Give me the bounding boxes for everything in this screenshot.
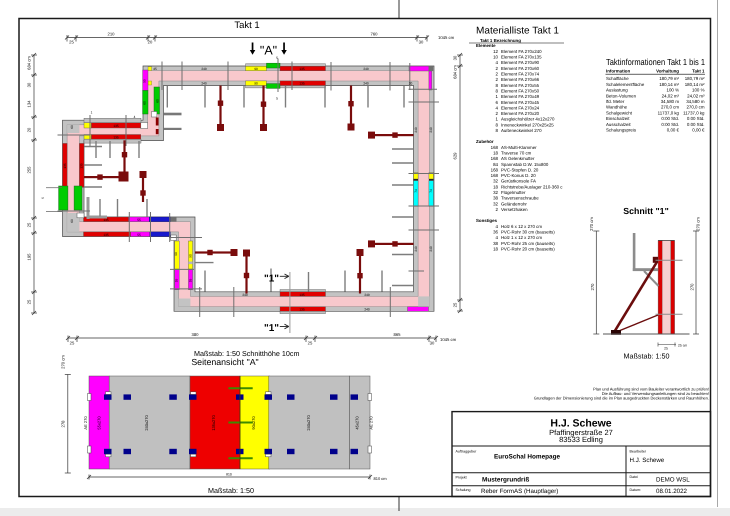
svg-text:10: 10 bbox=[493, 55, 498, 60]
svg-text:Mustergrundriß: Mustergrundriß bbox=[482, 477, 529, 484]
svg-text:Grundlagen der Dimensionierung: Grundlagen der Dimensionierung sind die … bbox=[534, 396, 709, 401]
svg-text:60: 60 bbox=[156, 99, 160, 103]
svg-text:0:00 Std.: 0:00 Std. bbox=[661, 122, 679, 127]
svg-text:Schalungspreis: Schalungspreis bbox=[606, 128, 637, 133]
svg-text:25: 25 bbox=[664, 347, 668, 351]
svg-text:240: 240 bbox=[429, 127, 433, 133]
svg-text:Traverse 70 cm: Traverse 70 cm bbox=[501, 151, 532, 156]
svg-text:168: 168 bbox=[491, 167, 499, 172]
svg-text:Beton-Volumen: Beton-Volumen bbox=[606, 93, 637, 98]
svg-text:Bearbeiter: Bearbeiter bbox=[630, 450, 647, 454]
svg-text:180,14 m²: 180,14 m² bbox=[659, 82, 679, 87]
svg-text:Schalung: Schalung bbox=[456, 488, 471, 492]
svg-text:Holz 6 x 12 x 270 cm: Holz 6 x 12 x 270 cm bbox=[501, 224, 542, 229]
svg-text:32: 32 bbox=[493, 190, 498, 195]
svg-text:25: 25 bbox=[69, 40, 74, 45]
svg-text:Element FA 270x45: Element FA 270x45 bbox=[501, 100, 540, 105]
svg-text:240: 240 bbox=[414, 246, 418, 252]
svg-text:"1": "1" bbox=[264, 274, 279, 285]
svg-text:55: 55 bbox=[137, 233, 141, 237]
svg-text:Auftraggeber: Auftraggeber bbox=[456, 450, 478, 454]
svg-text:74: 74 bbox=[429, 189, 433, 193]
svg-text:18: 18 bbox=[493, 184, 498, 189]
svg-text:240: 240 bbox=[364, 293, 370, 297]
svg-text:760: 760 bbox=[371, 32, 379, 37]
svg-text:4: 4 bbox=[134, 115, 136, 119]
svg-text:135x270: 135x270 bbox=[211, 415, 216, 431]
svg-text:83533 Edling: 83533 Edling bbox=[559, 435, 603, 444]
svg-text:Element FA 270x240: Element FA 270x240 bbox=[501, 49, 542, 54]
svg-text:Gerüstkonsole FA: Gerüstkonsole FA bbox=[501, 179, 536, 184]
svg-text:180,14 m²: 180,14 m² bbox=[685, 82, 705, 87]
svg-text:240: 240 bbox=[429, 246, 433, 252]
svg-text:74: 74 bbox=[414, 189, 418, 193]
svg-text:25: 25 bbox=[453, 302, 458, 307]
svg-text:1: 1 bbox=[91, 111, 93, 115]
svg-text:Element FA 270x24: Element FA 270x24 bbox=[501, 105, 540, 110]
svg-text:60: 60 bbox=[70, 219, 74, 223]
svg-text:Element FA 270x74: Element FA 270x74 bbox=[501, 72, 540, 77]
svg-text:38: 38 bbox=[493, 241, 498, 246]
svg-text:100 %: 100 % bbox=[667, 88, 680, 93]
svg-text:PVC-Stopfen D. 20: PVC-Stopfen D. 20 bbox=[501, 167, 539, 172]
svg-text:Datum:: Datum: bbox=[630, 488, 642, 492]
svg-text:0:00 Std.: 0:00 Std. bbox=[687, 116, 705, 121]
svg-text:Takt 1: Takt 1 bbox=[234, 20, 259, 31]
svg-text:Richtstrebe/Auslager 210-360 c: Richtstrebe/Auslager 210-360 c bbox=[501, 184, 563, 189]
svg-text:30: 30 bbox=[27, 82, 32, 87]
svg-text:AE 270: AE 270 bbox=[369, 416, 374, 430]
svg-text:Element FA 270x60: Element FA 270x60 bbox=[501, 66, 540, 71]
svg-text:PVC-Rohr 30 cm (bauseits): PVC-Rohr 30 cm (bauseits) bbox=[501, 230, 555, 235]
svg-text:PVC-Rohr 25 cm (bauseits): PVC-Rohr 25 cm (bauseits) bbox=[501, 241, 555, 246]
svg-text:11737,0 kg: 11737,0 kg bbox=[658, 110, 680, 115]
svg-text:Element FA 270x55: Element FA 270x55 bbox=[501, 83, 540, 88]
svg-text:18: 18 bbox=[493, 151, 498, 156]
svg-text:Einschalzeit: Einschalzeit bbox=[606, 116, 630, 121]
svg-text:55: 55 bbox=[137, 218, 141, 222]
svg-text:Element FA 270x90: Element FA 270x90 bbox=[501, 60, 540, 65]
svg-text:PVC-Konus D. 20: PVC-Konus D. 20 bbox=[501, 173, 536, 178]
svg-text:240: 240 bbox=[201, 67, 207, 71]
svg-text:135: 135 bbox=[80, 163, 84, 169]
svg-text:20: 20 bbox=[27, 127, 32, 132]
svg-text:90: 90 bbox=[254, 67, 258, 71]
svg-text:135: 135 bbox=[113, 136, 119, 140]
svg-text:240: 240 bbox=[363, 67, 369, 71]
svg-text:DEMO WSL: DEMO WSL bbox=[656, 477, 690, 484]
svg-text:135: 135 bbox=[113, 124, 119, 128]
svg-text:135: 135 bbox=[299, 82, 305, 86]
svg-text:380: 380 bbox=[192, 332, 200, 337]
svg-text:Versetzhaken: Versetzhaken bbox=[501, 207, 528, 212]
svg-text:32: 32 bbox=[493, 201, 498, 206]
svg-text:684 cm: 684 cm bbox=[27, 56, 32, 70]
svg-text:Element FA 270x135: Element FA 270x135 bbox=[501, 55, 542, 60]
svg-text:270: 270 bbox=[590, 283, 595, 291]
svg-text:270: 270 bbox=[690, 283, 695, 291]
svg-text:240: 240 bbox=[363, 82, 369, 86]
svg-text:Vorhaltung: Vorhaltung bbox=[656, 69, 679, 74]
svg-text:36: 36 bbox=[493, 230, 498, 235]
svg-text:Sonstiges: Sonstiges bbox=[476, 218, 498, 223]
svg-text:25: 25 bbox=[70, 341, 75, 346]
svg-text:55: 55 bbox=[174, 279, 178, 283]
svg-text:240x270: 240x270 bbox=[306, 415, 311, 431]
svg-text:135: 135 bbox=[299, 293, 305, 297]
svg-text:Ausschalzeit: Ausschalzeit bbox=[606, 122, 631, 127]
svg-text:5: 5 bbox=[41, 197, 45, 199]
svg-text:25: 25 bbox=[27, 299, 32, 304]
svg-text:25 cm: 25 cm bbox=[678, 344, 687, 348]
svg-text:45: 45 bbox=[153, 67, 157, 71]
svg-text:EuroSchal Homepage: EuroSchal Homepage bbox=[494, 454, 560, 461]
svg-text:30: 30 bbox=[453, 55, 458, 60]
svg-text:Schnitt "1": Schnitt "1" bbox=[623, 206, 669, 216]
svg-text:20: 20 bbox=[409, 82, 413, 86]
svg-text:30: 30 bbox=[419, 40, 424, 45]
svg-text:20: 20 bbox=[148, 40, 153, 45]
svg-text:168: 168 bbox=[491, 173, 499, 178]
svg-text:55: 55 bbox=[143, 79, 147, 83]
svg-text:Inneneckwinkel 270x25x25: Inneneckwinkel 270x25x25 bbox=[501, 122, 554, 127]
svg-text:Außeneckwinkel 270: Außeneckwinkel 270 bbox=[501, 128, 542, 133]
svg-text:25: 25 bbox=[27, 222, 32, 227]
svg-text:Element FA 270x50: Element FA 270x50 bbox=[501, 89, 540, 94]
svg-text:270,0 cm: 270,0 cm bbox=[661, 105, 679, 110]
svg-text:Seitenansicht "A": Seitenansicht "A" bbox=[191, 357, 258, 367]
svg-text:Reber FormAS (Hauptlager): Reber FormAS (Hauptlager) bbox=[481, 488, 558, 495]
svg-text:240: 240 bbox=[414, 127, 418, 133]
svg-text:240: 240 bbox=[364, 308, 370, 312]
svg-text:84: 84 bbox=[493, 162, 498, 167]
svg-text:240: 240 bbox=[242, 293, 248, 297]
svg-text:270 cm: 270 cm bbox=[61, 355, 66, 369]
svg-text:134: 134 bbox=[27, 100, 32, 108]
svg-text:AS Gelenkmutter: AS Gelenkmutter bbox=[501, 156, 535, 161]
svg-text:55: 55 bbox=[189, 279, 193, 283]
svg-text:Zubehör: Zubehör bbox=[476, 139, 494, 144]
svg-text:Auslastung: Auslastung bbox=[606, 88, 628, 93]
svg-text:180,79 m²: 180,79 m² bbox=[685, 76, 705, 81]
svg-text:AS-Multi-Klammer: AS-Multi-Klammer bbox=[501, 145, 537, 150]
svg-text:34,580 m: 34,580 m bbox=[686, 99, 705, 104]
svg-text:"1": "1" bbox=[264, 323, 279, 334]
svg-text:Maßstab: 1:50: Maßstab: 1:50 bbox=[208, 486, 254, 495]
svg-text:Flügelmutter: Flügelmutter bbox=[501, 190, 526, 195]
svg-text:Holz 1 x 12 x 270 cm: Holz 1 x 12 x 270 cm bbox=[501, 235, 542, 240]
svg-text:90: 90 bbox=[189, 254, 193, 258]
svg-text:PVC-Rohr 20 cm (bauseits): PVC-Rohr 20 cm (bauseits) bbox=[501, 246, 555, 251]
svg-text:Takt 1 Bezeichnung: Takt 1 Bezeichnung bbox=[480, 38, 521, 43]
svg-text:Spannstab D.W. 15x800: Spannstab D.W. 15x800 bbox=[501, 162, 549, 167]
svg-text:38: 38 bbox=[493, 196, 498, 201]
svg-text:810: 810 bbox=[226, 473, 232, 477]
svg-text:Schalelementfläche: Schalelementfläche bbox=[606, 82, 645, 87]
svg-text:34,580 m: 34,580 m bbox=[661, 99, 680, 104]
svg-text:0:00 Std.: 0:00 Std. bbox=[661, 116, 679, 121]
svg-text:Information: Information bbox=[606, 69, 630, 74]
svg-text:24,02 m³: 24,02 m³ bbox=[687, 93, 705, 98]
svg-text:AE 270: AE 270 bbox=[83, 416, 88, 430]
svg-text:"A": "A" bbox=[260, 44, 277, 58]
svg-text:0:00 Std.: 0:00 Std. bbox=[687, 122, 705, 127]
svg-text:135: 135 bbox=[103, 218, 109, 222]
svg-text:135: 135 bbox=[63, 163, 67, 169]
svg-text:Traversenschraube: Traversenschraube bbox=[501, 196, 539, 201]
svg-text:135: 135 bbox=[299, 308, 305, 312]
svg-text:168: 168 bbox=[491, 156, 499, 161]
svg-text:Element FA 270x20: Element FA 270x20 bbox=[501, 111, 540, 116]
svg-text:100 %: 100 % bbox=[692, 88, 705, 93]
svg-text:55x270: 55x270 bbox=[97, 416, 102, 430]
svg-text:810 cm: 810 cm bbox=[374, 476, 388, 481]
svg-text:240: 240 bbox=[201, 82, 207, 86]
svg-text:195: 195 bbox=[27, 253, 32, 261]
svg-text:Elemente: Elemente bbox=[476, 43, 496, 48]
svg-text:1045 cm: 1045 cm bbox=[438, 35, 455, 40]
svg-text:Wandhöhe: Wandhöhe bbox=[606, 105, 628, 110]
svg-text:32: 32 bbox=[493, 179, 498, 184]
svg-text:25: 25 bbox=[308, 341, 313, 346]
svg-text:135: 135 bbox=[103, 233, 109, 237]
svg-text:45x270: 45x270 bbox=[355, 416, 360, 430]
svg-text:Element FA 270x66: Element FA 270x66 bbox=[501, 77, 540, 82]
svg-text:90: 90 bbox=[254, 82, 258, 86]
svg-text:168: 168 bbox=[491, 145, 499, 150]
svg-text:Element FA 270x49: Element FA 270x49 bbox=[501, 94, 540, 99]
svg-text:278: 278 bbox=[61, 420, 66, 428]
svg-text:0,00 €: 0,00 € bbox=[692, 128, 705, 133]
svg-text:08.01.2022: 08.01.2022 bbox=[656, 488, 688, 495]
svg-text:60: 60 bbox=[70, 125, 74, 129]
svg-text:Ausgleichshölzer 4x12x270: Ausgleichshölzer 4x12x270 bbox=[501, 117, 555, 122]
svg-text:5: 5 bbox=[276, 97, 278, 101]
svg-text:684 cm: 684 cm bbox=[453, 65, 458, 79]
svg-text:180,79 m²: 180,79 m² bbox=[659, 76, 679, 81]
svg-text:240x270: 240x270 bbox=[144, 415, 149, 431]
svg-text:210: 210 bbox=[108, 32, 116, 37]
svg-text:lfd. Meter: lfd. Meter bbox=[606, 99, 625, 104]
svg-text:90: 90 bbox=[174, 252, 178, 256]
svg-text:270 cm: 270 cm bbox=[589, 217, 594, 231]
svg-text:255: 255 bbox=[27, 166, 32, 174]
svg-text:Geländerrohr: Geländerrohr bbox=[501, 201, 527, 206]
svg-text:270,0 cm: 270,0 cm bbox=[686, 105, 704, 110]
svg-text:18: 18 bbox=[493, 246, 498, 251]
svg-text:24,02 m³: 24,02 m³ bbox=[662, 93, 680, 98]
svg-text:135: 135 bbox=[299, 67, 305, 71]
svg-text:Takt 1: Takt 1 bbox=[692, 69, 705, 74]
svg-text:30: 30 bbox=[430, 341, 435, 346]
svg-text:0,00 €: 0,00 € bbox=[667, 128, 680, 133]
svg-text:Taktinformationen Takt 1 bis: Taktinformationen Takt 1 bis 1 bbox=[606, 57, 705, 67]
svg-text:865: 865 bbox=[394, 332, 402, 337]
svg-text:60: 60 bbox=[143, 101, 147, 105]
svg-text:H.J. Schewe: H.J. Schewe bbox=[630, 457, 665, 464]
svg-text:629: 629 bbox=[453, 152, 458, 160]
svg-text:Schalfläche: Schalfläche bbox=[606, 76, 629, 81]
svg-text:12: 12 bbox=[493, 49, 498, 54]
svg-text:11737,0 kg: 11737,0 kg bbox=[683, 110, 705, 115]
svg-text:Schalgewicht: Schalgewicht bbox=[606, 110, 633, 115]
svg-text:Datei: Datei bbox=[630, 475, 639, 479]
svg-text:Maßstab: 1:50: Maßstab: 1:50 bbox=[624, 352, 670, 361]
svg-text:Projekt: Projekt bbox=[456, 476, 467, 480]
svg-text:270 cm: 270 cm bbox=[696, 217, 701, 231]
svg-text:1045 cm: 1045 cm bbox=[440, 337, 457, 342]
svg-text:Materialliste Takt 1: Materialliste Takt 1 bbox=[476, 26, 559, 37]
